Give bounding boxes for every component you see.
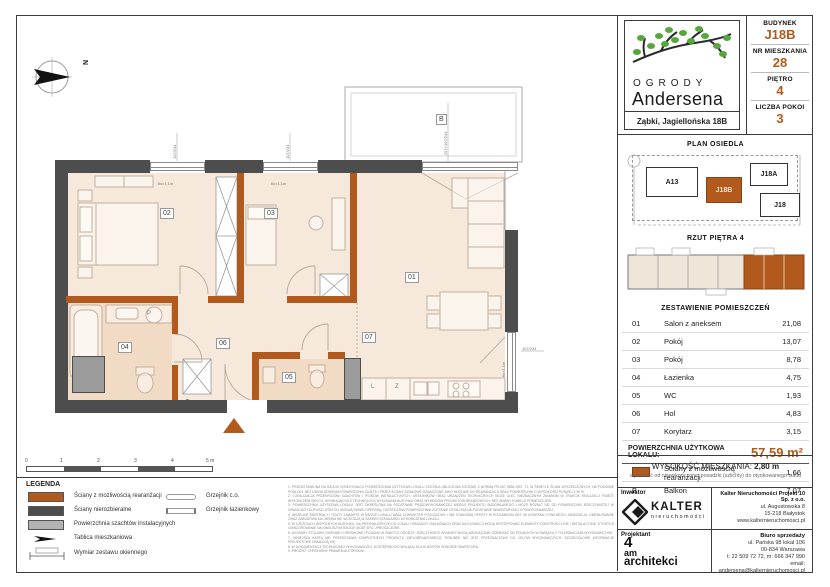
sales-addr2: 00-834 Warszawa: [714, 547, 805, 554]
bed-double: [78, 190, 158, 278]
disclaimer-line: 5. W CZĘŚCIACH WSPÓLNYCH BUDYNKU, NA PRZ…: [288, 522, 614, 531]
room-no: 03: [622, 355, 664, 364]
site-building-j18: J18: [760, 193, 800, 217]
investor-block: Inwestor KALTER nieruchomości Kalter Nie…: [618, 487, 813, 529]
disclaimer-line: 4. WSZELKIE MATERIAŁY I RZUTY ZAWARTE W …: [288, 513, 614, 522]
room-label-01: 01: [405, 272, 419, 283]
room-no: 04: [622, 373, 664, 382]
scale-bar-segment: [64, 467, 101, 471]
logo-text-ogrody: OGRODY: [633, 78, 707, 89]
window-living: [507, 332, 516, 392]
room-label-06: 06: [216, 338, 230, 349]
dim-window-left-sub: fix×1,1m: [158, 181, 173, 186]
dim-window-left: 107/234: [172, 145, 177, 159]
kalter-logo-sub: nieruchomości: [651, 514, 706, 520]
unit-fields: BUDYNEK J18B NR MIESZKANIA 28 PIĘTRO 4 L…: [746, 15, 813, 135]
entrance-triangle: [223, 418, 245, 433]
legend-item-label: Wymiar zestawu okiennego: [74, 550, 147, 556]
room-no: 05: [622, 391, 664, 400]
room-area: 1,93: [759, 391, 809, 400]
room-area: 8,78: [759, 355, 809, 364]
scale-tick: 5 m: [206, 458, 214, 464]
fridge-label: L: [371, 384, 374, 390]
wall-bottom-1: [55, 400, 227, 413]
room-name: Salon z aneksem: [664, 319, 759, 328]
investor-company: Kalter Nieruchomości Projekt 10 Sp. z o.…: [714, 491, 805, 503]
radiator-co-icon: [166, 494, 196, 500]
field-divider: [751, 72, 809, 73]
room-area: 4,75: [759, 373, 809, 382]
wall-bottom-2: [267, 400, 518, 413]
room-no: 06: [622, 409, 664, 418]
legend-item-label: Grzejnik łazienkowy: [206, 507, 259, 513]
room-label-03: 03: [264, 208, 278, 219]
orange-wall-bath-top: [66, 296, 178, 303]
field-label: PIĘTRO: [747, 76, 813, 83]
investor-cell: Inwestor KALTER nieruchomości: [618, 488, 712, 530]
room-label-07: 07: [362, 332, 376, 343]
legend: LEGENDA Ściany z możliwością rearanżacji…: [26, 481, 291, 569]
shaft-wc: [344, 358, 361, 400]
radiator-bath-icon: [166, 508, 196, 514]
room-area: 13,07: [759, 337, 809, 346]
disclaimer-line: 7. NINIEJSZA KARTA NIE PRZEDSTAWIA KOMPL…: [288, 536, 614, 545]
room-name: WC: [664, 391, 759, 400]
orange-wall-wc-top-2: [328, 352, 345, 359]
table-row: 05 WC 1,93: [622, 387, 809, 405]
investor-label: Inwestor: [621, 490, 646, 496]
room-area: 3,15: [759, 427, 809, 436]
shaft-bathroom: [72, 356, 105, 393]
toilet-wc: [309, 365, 325, 388]
field-label: NR MIESZKANIA: [747, 48, 813, 55]
sales-phone: t: 22 509 72 72, m: 666 347 990: [714, 554, 805, 561]
dim-balcony-door: 257×167/234: [443, 132, 448, 155]
orange-wall-hall: [208, 296, 240, 303]
field-value: 4: [747, 83, 813, 98]
room-name: Łazienka: [664, 373, 759, 382]
scale-bar-segment: [138, 467, 175, 471]
field-value: 3: [747, 111, 813, 126]
table-row: 07 Korytarz 3,15: [622, 423, 809, 441]
hall-shaft-hatch: [183, 359, 211, 394]
corner-shaft-hatch: [320, 274, 348, 298]
field-divider: [751, 44, 809, 45]
wall-top-1: [55, 160, 150, 173]
table-row: 02 Pokój 13,07: [622, 333, 809, 351]
height-value: 2,80 m: [754, 462, 779, 471]
disclaimer-line: 3. POWIERZCHNIA UŻYTKOWA LOKALU JEST OKR…: [288, 503, 614, 512]
room-name: Korytarz: [664, 427, 759, 436]
room-name: Hol: [664, 409, 759, 418]
legend-item-label: Tablica mieszkaniowa: [74, 535, 132, 541]
table-row: 06 Hol 4,83: [622, 405, 809, 423]
logo-box: OGRODY Andersena Ząbki, Jagiellońska 18B: [624, 20, 740, 130]
orange-wall-bath-right-2: [172, 365, 178, 400]
room-label-02: 02: [160, 208, 174, 219]
room-name: Pokój: [664, 355, 759, 364]
room-name: Pokój: [664, 337, 759, 346]
designer-block: Projektant 4 am architekci Biuro sprzeda…: [618, 529, 813, 571]
table-row: 01 Salon z aneksem 21,08: [622, 315, 809, 333]
legend-item-label: Grzejnik c.o.: [206, 493, 239, 499]
room-label-04: 04: [118, 342, 132, 353]
bath-counter: [106, 305, 172, 323]
kitchen-counter: [362, 378, 505, 400]
balcony-door-window: [422, 162, 518, 171]
apartment-card-page: N B: [0, 0, 830, 587]
designer-cell: Projektant 4 am architekci: [618, 530, 712, 572]
desk-03: [309, 198, 345, 250]
footer-divider: [16, 477, 617, 478]
scale-tick: 4: [171, 458, 174, 464]
wall-left: [55, 160, 68, 413]
field-divider: [751, 100, 809, 101]
disclaimer-line: 9. PROJEKT CHRONIONY PRAWEM AUTORSKIM.: [288, 549, 614, 554]
window-03: [263, 162, 318, 171]
scale-bar: 0 1 2 3 4 5 m: [25, 458, 225, 474]
plan-area: N B: [16, 15, 617, 571]
legend-title: LEGENDA: [26, 481, 60, 488]
rooms-table-title: ZESTAWIENIE POMIESZCZEŃ: [618, 305, 813, 312]
orange-wall-02-03: [237, 173, 244, 303]
legend-item-label: Ściany z możliwością rearanżacji: [74, 493, 162, 499]
washer-label: P: [147, 311, 151, 317]
room-area: 21,08: [759, 319, 809, 328]
sales-email: email: andersena@kalternieruchomosci.pl: [714, 561, 805, 575]
orange-wall-wc-top-1: [252, 352, 300, 359]
scale-tick: 3: [134, 458, 137, 464]
dim-window-right-sub: fix×1,1m: [271, 181, 286, 186]
dim-living-window-label: fix×1,1m: [501, 362, 506, 377]
legend-swatch-orange: [28, 492, 64, 502]
investor-www: www.kalternieruchomosci.pl: [714, 518, 805, 525]
wc-sink: [263, 367, 275, 383]
entrance-opening: [227, 400, 267, 413]
logo-text-andersena: Andersena: [632, 89, 724, 110]
height-subtitle: wysokość od niewykończonej posadzki (szl…: [618, 473, 813, 479]
field-label: BUDYNEK: [747, 20, 813, 27]
mailbox-arrow-icon: [32, 534, 60, 544]
floor-thumb-title: RZUT PIĘTRA 4: [618, 235, 813, 242]
legend-item-label: Ściany nierozbieralne: [74, 507, 131, 513]
orange-wall-03-bottom: [287, 296, 357, 303]
scale-tick: 1: [60, 458, 63, 464]
kalter-logo-icon: [622, 499, 648, 525]
wardrobe-02: [95, 176, 153, 187]
wall-top-3: [318, 160, 422, 173]
dim-living-window: 107/234: [522, 346, 536, 351]
dim-window-right: 107/234: [285, 145, 290, 159]
window-dim-icon: [28, 547, 66, 561]
tree-logo: [631, 24, 733, 76]
investor-addr1: ul. Augustowska 8: [714, 504, 805, 511]
window-02: [150, 162, 205, 171]
legend-swatch-gray: [28, 520, 64, 530]
site-building-j18b: J18B: [706, 177, 742, 203]
designer-architekci: architekci: [624, 557, 678, 568]
site-plan-title: PLAN OSIEDLA: [618, 141, 813, 148]
room-area: 4,83: [759, 409, 809, 418]
table-row: 04 Łazienka 4,75: [622, 369, 809, 387]
wall-top-2: [205, 160, 263, 173]
sales-addr1: ul. Pańska 98 lokal 106: [714, 540, 805, 547]
disclaimer-line: 1. PRZEDSTAWIONA NA RZUCIE KONDYGNACJI P…: [288, 485, 614, 494]
toilet-bath: [136, 367, 154, 393]
room-no: 01: [622, 319, 664, 328]
height-label: WYSOKOŚĆ MIESZKANIA:: [652, 462, 752, 471]
table-row: 03 Pokój 8,78: [622, 351, 809, 369]
legend-item-label: Powierzchnia szachtów instalacyjnych: [74, 521, 175, 527]
logo-divider: [625, 111, 739, 112]
project-address: Ząbki, Jagiellońska 18B: [625, 117, 739, 126]
dining-table: [427, 292, 501, 330]
wardrobe-shaft-hatch: [216, 177, 237, 296]
disclaimer-line: 6. WYMIARY STOLARKI OKIENNEJ I DRZWIOWEJ…: [288, 531, 614, 536]
sidebar: OGRODY Andersena Ząbki, Jagiellońska 18B…: [617, 15, 812, 571]
wall-right-1: [505, 230, 518, 332]
floor-thumbnail: [626, 245, 806, 297]
disclaimer-block: 1. PRZEDSTAWIONA NA RZUCIE KONDYGNACJI P…: [288, 485, 614, 567]
site-plan-map: A13 J18B J18A J18: [624, 151, 807, 229]
investor-addr2: 15-218 Białystok: [714, 511, 805, 518]
disclaimer-line: 2. LOKALIZACJA PRZEKROJÓW SZACHTÓW I PIO…: [288, 494, 614, 503]
investor-contact: Kalter Nieruchomości Projekt 10 Sp. z o.…: [714, 488, 809, 530]
dishwasher-label: Z: [395, 384, 399, 390]
kalter-logo-text: KALTER: [651, 501, 703, 513]
room-no: 02: [622, 337, 664, 346]
orange-wall-03-01: [350, 173, 357, 303]
sofa: [452, 178, 504, 268]
sales-label: Biuro sprzedaży: [714, 533, 805, 539]
scale-tick: 0: [25, 458, 28, 464]
scale-tick: 2: [97, 458, 100, 464]
scale-bar-track: [26, 466, 213, 472]
orange-wall-wc-left: [252, 352, 259, 400]
height-line: WYSOKOŚĆ MIESZKANIA: 2,80 m: [618, 462, 813, 471]
legend-swatch-dark: [28, 506, 64, 516]
room-no: 07: [622, 427, 664, 436]
sales-contact: Biuro sprzedaży ul. Pańska 98 lokal 106 …: [714, 530, 809, 572]
field-value: J18B: [747, 27, 813, 42]
field-label: LICZBA POKOI: [747, 104, 813, 111]
height-block: WYSOKOŚĆ MIESZKANIA: 2,80 m wysokość od …: [618, 455, 813, 487]
site-building-a13: A13: [646, 167, 698, 197]
field-value: 28: [747, 55, 813, 70]
orange-wall-bath-right-1: [172, 303, 178, 334]
site-building-j18a: J18A: [750, 163, 788, 186]
room-label-05: 05: [282, 372, 296, 383]
header-block: OGRODY Andersena Ząbki, Jagiellońska 18B…: [618, 15, 813, 135]
